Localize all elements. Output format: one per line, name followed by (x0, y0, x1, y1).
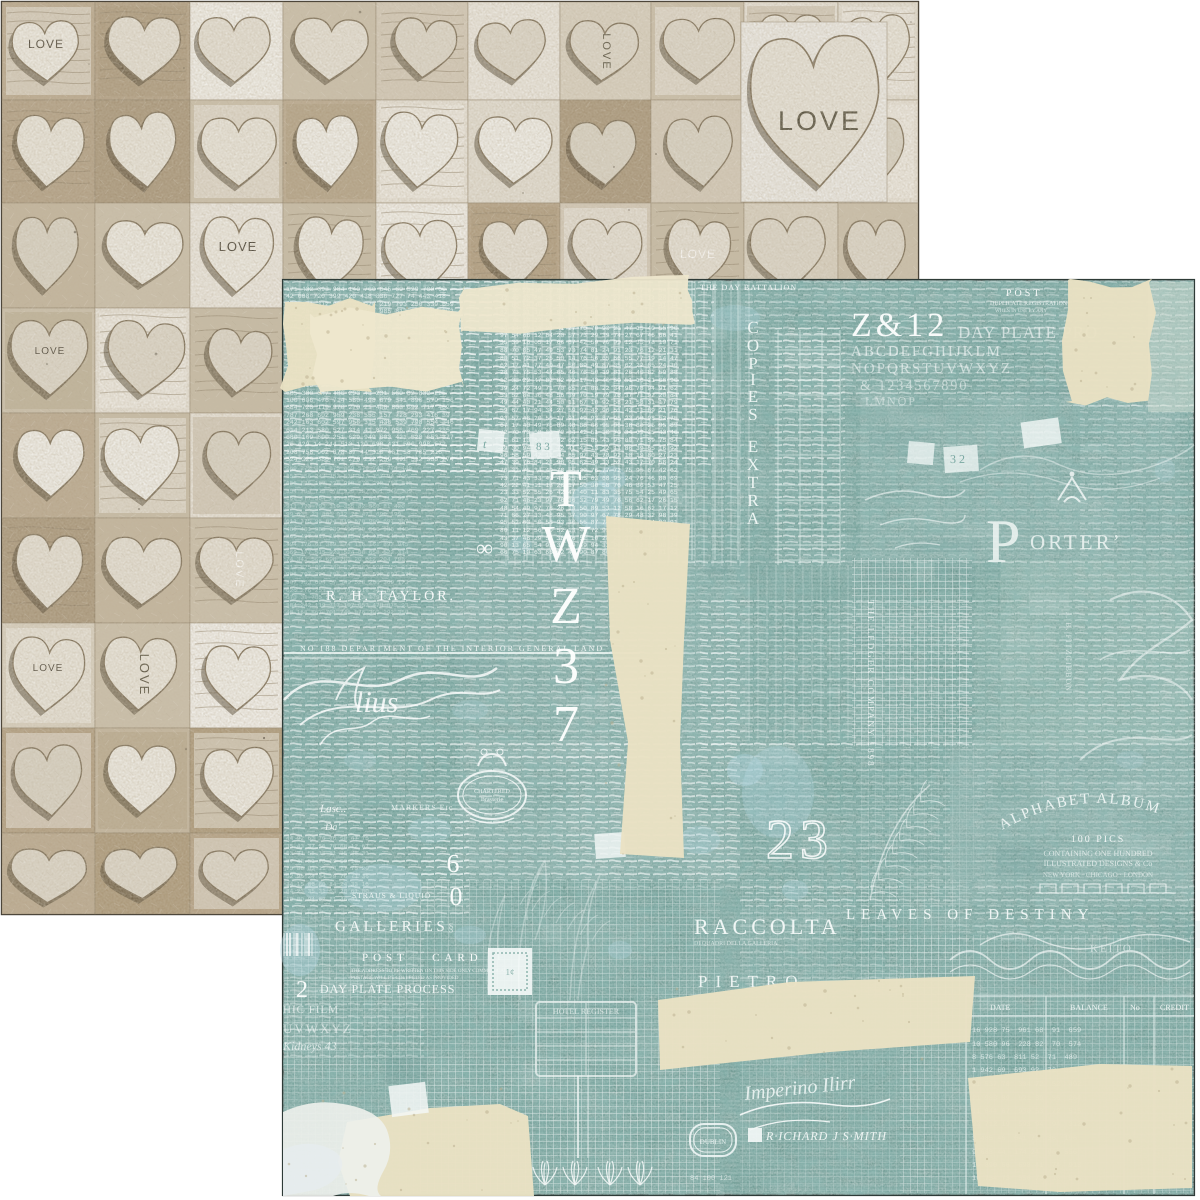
svg-text:E: E (748, 387, 758, 406)
svg-text:E: E (748, 437, 758, 456)
svg-text:73 71 43 33 47 46 25 35 63 68: 73 71 43 33 47 46 25 35 63 68 95 24 76 4… (500, 475, 678, 482)
svg-text:X: X (747, 455, 759, 474)
svg-text:88 70 85 47 49 53 73 74 81 24: 88 70 85 47 49 53 73 74 81 24 91 23 76 1… (500, 347, 678, 354)
svg-text:208 758 902 878 87 44 310 461: 208 758 902 878 87 44 310 461 38 705 216 (286, 449, 442, 456)
svg-text:97 54 66 12 84 20 57 73 29 39: 97 54 66 12 84 20 57 73 29 39 74 27 67 4… (500, 332, 678, 339)
svg-text:POST CARD: POST CARD (362, 952, 483, 964)
svg-text:489 451 985 239 495 29 596 985: 489 451 985 239 495 29 596 985 440 (286, 526, 409, 533)
svg-text:DATE: DATE (990, 1003, 1011, 1012)
svg-text:CREDIT: CREDIT (1160, 1003, 1189, 1012)
svg-text:611 375 96 834 810 670 990 697: 611 375 96 834 810 670 990 697 307 (286, 518, 409, 525)
svg-text:lius: lius (340, 686, 398, 719)
svg-text:& 1234567890: & 1234567890 (860, 379, 968, 394)
svg-text:47 39 76 84 21 98 95 62 49 13: 47 39 76 84 21 98 95 62 49 13 52 43 17 7… (500, 459, 678, 466)
svg-text:S: S (748, 405, 757, 424)
svg-text:DI QUADRI DELLA GALLERIA: DI QUADRI DELLA GALLERIA (694, 941, 778, 947)
svg-text:29 30 94 69 33 72 41 42 13 22: 29 30 94 69 33 72 41 42 13 22 11 86 39 5… (500, 445, 678, 452)
svg-text:J. B. FITZGIBBON: J. B. FITZGIBBON (1064, 612, 1073, 692)
svg-text:Z&12: Z&12 (851, 307, 948, 344)
svg-text:49 44 40 21 44 50 11 67 10 92: 49 44 40 21 44 50 11 67 10 92 58 21 58 3… (500, 399, 678, 406)
svg-text:171 432 693 984 140 760 645 69: 171 432 693 984 140 760 645 69 529 780 6… (286, 286, 446, 293)
svg-text:7: 7 (553, 696, 579, 753)
svg-text:74 341 562 698 783 20 612 204: 74 341 562 698 783 20 612 204 796 (286, 556, 405, 563)
svg-text:R·ICHARD J S·MITH: R·ICHARD J S·MITH (765, 1129, 887, 1143)
svg-text:Brasserie: Brasserie (481, 797, 504, 803)
svg-text:100 606 476 714 580 498 679 54: 100 606 476 714 580 498 679 541 890 579 … (286, 397, 454, 404)
svg-text:35 39 16 65 17 66 87 42 59 70: 35 39 16 65 17 66 87 42 59 70 93 12 35 7… (500, 339, 678, 346)
svg-text:6: 6 (447, 849, 460, 878)
svg-text:Kidneys 43: Kidneys 43 (282, 1039, 337, 1053)
svg-text:75 88 83 11 74 77 75 20: 75 88 83 11 74 77 75 20 (286, 865, 369, 872)
svg-text:8 576 63 811 52 71 489: 8 576 63 811 52 71 489 (972, 1054, 1077, 1062)
svg-text:265 497 917 108 825 754 419 64: 265 497 917 108 825 754 419 648 61 (286, 533, 409, 540)
svg-text:T: T (748, 473, 759, 492)
svg-text:42 22 41 11 18 26 17 50 30 58: 42 22 41 11 18 26 17 50 30 58 76 46 86 5… (500, 482, 678, 489)
svg-text:99 635 23 805 932 72 473 690 1: 99 635 23 805 932 72 473 690 199 (286, 511, 402, 518)
svg-text:87 43 51 78 39 59 18 35: 87 43 51 78 39 59 18 35 (286, 858, 369, 865)
svg-text:12 38 22 47 82 82 92 17 43 46: 12 38 22 47 82 82 92 17 43 46 69 51 16 3… (500, 377, 678, 384)
svg-text:W: W (541, 516, 590, 573)
svg-text:2: 2 (296, 977, 308, 1003)
svg-text:48 168 867 701 746 876 305 292: 48 168 867 701 746 876 305 292 358 (286, 609, 409, 616)
svg-text:DUPLICATE REGISTRATION: DUPLICATE REGISTRATION (990, 301, 1068, 307)
svg-text:911 773 793 319 355 82 560 81: 911 773 793 319 355 82 560 81 420 (286, 503, 405, 510)
svg-text:42 608 720 399 420 438 836 727: 42 608 720 399 420 438 836 727 74 443 41… (286, 293, 446, 300)
svg-text:A: A (747, 509, 760, 528)
svg-text:76 32 75 34 49 78 55 39 76 77: 76 32 75 34 49 78 55 39 76 77 72 75 95 6… (500, 467, 678, 474)
svg-text:DUBLIN: DUBLIN (700, 1138, 726, 1146)
svg-text:LEAVES OF DESTINY: LEAVES OF DESTINY (846, 907, 1094, 923)
svg-text:POSTAGE WILL BE COLLECTED AS P: POSTAGE WILL BE COLLECTED AS PROVIDED (351, 975, 459, 981)
svg-text:614 213 580 527 314 41 872 956: 614 213 580 527 314 41 872 956 769 227 2… (286, 427, 450, 434)
svg-text:NOPQRSTUVWXYZ: NOPQRSTUVWXYZ (851, 361, 1012, 377)
svg-text:313 875 864 349 524 643 598 72: 313 875 864 349 524 643 598 729 911 (286, 564, 412, 571)
svg-text:P: P (986, 508, 1020, 576)
svg-text:——STRAUS & LIQUID——: ——STRAUS & LIQUID—— (334, 891, 448, 900)
svg-text:BALANCE: BALANCE (1070, 1003, 1108, 1012)
svg-text:656 885 162 328 958 570 292 78: 656 885 162 328 958 570 292 786 843 (286, 480, 412, 487)
svg-text:NEW YORK · CHICAGO · LONDON: NEW YORK · CHICAGO · LONDON (1043, 871, 1153, 879)
svg-text:39 24 72 49 71 70 65 71 88 22: 39 24 72 49 71 70 65 71 88 22 34 96 78 9… (500, 385, 678, 392)
svg-text:POST: POST (1006, 288, 1042, 299)
svg-text:787 268 602 959 238 555 157 72: 787 268 602 959 238 555 157 728 293 416 … (286, 412, 450, 419)
svg-text:53 52 84 36 48 56 39 70 19 79: 53 52 84 36 48 56 39 70 19 79 76 37 71 9… (500, 392, 678, 399)
svg-text:THE LEDGER COMPANY 1898: THE LEDGER COMPANY 1898 (866, 600, 876, 768)
svg-text:R. H. TAYLOR.: R. H. TAYLOR. (326, 589, 456, 604)
svg-text:23: 23 (766, 809, 834, 871)
svg-text:LMNOP: LMNOP (865, 394, 917, 408)
svg-text:81 61 13 64 53 92 62 15 85 43: 81 61 13 64 53 92 62 15 85 43 95 80 71 5… (500, 437, 678, 444)
svg-text:44 92 63 70 76 50 47 75: 44 92 63 70 76 50 47 75 (286, 835, 369, 842)
svg-text:No: No (1130, 1003, 1140, 1012)
svg-text:28 73 75 53 44 65 46 76 50 19: 28 73 75 53 44 65 46 76 50 19 83 26 40 8… (500, 369, 678, 376)
svg-text:26 429 14 244 513 120 688 431: 26 429 14 244 513 120 688 431 596 998 57… (286, 441, 446, 448)
svg-text:260 272 353 875 859 579 743 77: 260 272 353 875 859 579 743 774 449 (286, 465, 412, 472)
svg-text:0: 0 (450, 882, 463, 911)
svg-text:669 177 515 923 524 58 658 522: 669 177 515 923 524 58 658 522 314 (286, 549, 409, 556)
svg-text:100 PICS: 100 PICS (1071, 834, 1126, 845)
svg-text:354 784 713 678 930 137 681 54: 354 784 713 678 930 137 681 546 389 (286, 488, 412, 495)
svg-text:93 57 46 20 56 17 91 49 93 87: 93 57 46 20 56 17 91 49 93 87 95 23 68 9… (500, 415, 678, 422)
svg-text:§: § (448, 920, 454, 934)
svg-text:O: O (747, 336, 759, 355)
svg-text:3 2: 3 2 (950, 452, 965, 466)
svg-text:96 58 59 42 12 44 65 97 43 78: 96 58 59 42 12 44 65 97 43 78 92 10 19 8… (500, 452, 678, 459)
svg-text:524 329 580 701 278 212 259 49: 524 329 580 701 278 212 259 492 512 330 … (286, 456, 454, 463)
svg-text:THE DAY BATTALION: THE DAY BATTALION (700, 283, 797, 292)
svg-text:Lasc..: Lasc.. (319, 803, 346, 815)
svg-text:CONTAINING ONE HUNDRED: CONTAINING ONE HUNDRED (1043, 849, 1152, 858)
svg-text:R: R (747, 491, 759, 510)
svg-text:84 100 121: 84 100 121 (690, 1175, 732, 1183)
svg-text:ORTER’: ORTER’ (1030, 530, 1123, 554)
svg-text:∞: ∞ (476, 536, 493, 562)
svg-text:HIC FILM: HIC FILM (283, 1004, 339, 1016)
svg-text:C: C (747, 318, 758, 337)
svg-text:852 356 243 752 538 512 757 94: 852 356 243 752 538 512 757 94 706 (286, 473, 409, 480)
svg-text:168 777 504 390 926 31 838 712: 168 777 504 390 926 31 838 712 973 (286, 495, 409, 502)
svg-text:8 3: 8 3 (536, 441, 550, 453)
svg-text:Z: Z (550, 578, 582, 635)
svg-text:UVWXYZ: UVWXYZ (283, 1021, 353, 1036)
svg-text:16 928 75 961 68 91 659: 16 928 75 961 68 91 659 (972, 1027, 1081, 1035)
svg-text:53 31 55 11 81 35 38 31: 53 31 55 11 81 35 38 31 (286, 850, 369, 857)
svg-text:ILLUSTRATED DESIGNS & Co: ILLUSTRATED DESIGNS & Co (1044, 859, 1153, 868)
svg-text:52 96 24 34 79 76 71 36: 52 96 24 34 79 76 71 36 (286, 873, 369, 880)
svg-text:680 169 600 251 629 949 603 42: 680 169 600 251 629 949 603 421 528 653 … (286, 434, 454, 441)
svg-text:RACCOLTA: RACCOLTA (694, 914, 841, 939)
svg-text:62 17 41 77 40 47 50 89 49 87: 62 17 41 77 40 47 50 89 49 87 35 62 22 8… (500, 362, 678, 369)
svg-text:ABCDEFGHIJKLM: ABCDEFGHIJKLM (851, 344, 1002, 360)
svg-text:35 43 37 56 78 68 12 67: 35 43 37 56 78 68 12 67 (286, 843, 369, 850)
svg-text:72 70 73 68 66 70 34 42 51 38: 72 70 73 68 66 70 34 42 51 38 73 34 69 3… (500, 429, 678, 436)
svg-text:80 51 72 37 25 50 14 76 56 65: 80 51 72 37 25 50 14 76 56 65 66 55 77 1… (500, 355, 678, 362)
svg-text:48 54 49 97 78 26 13 50 89 53: 48 54 49 97 78 26 13 50 89 53 12 58 16 6… (500, 505, 678, 512)
svg-text:494 176 61 389 174 116 161 897: 494 176 61 389 174 116 161 897 945 (286, 541, 409, 548)
svg-text:34 15 86 80 84 24 33 16: 34 15 86 80 84 24 33 16 (286, 881, 369, 888)
svg-text:62 71 46 23 97 76 36 32 79 49: 62 71 46 23 97 76 36 32 79 49 76 56 62 1… (500, 497, 678, 504)
svg-text:1¢: 1¢ (506, 967, 515, 977)
svg-text:3: 3 (553, 638, 579, 695)
svg-text:MARKERS Etc: MARKERS Etc (391, 803, 453, 812)
svg-text:Da’: Da’ (324, 822, 341, 833)
svg-text:HOTEL REGISTER: HOTEL REGISTER (553, 1007, 620, 1016)
svg-text:T: T (550, 461, 582, 518)
svg-text:DAY PLATE PROCESS: DAY PLATE PROCESS (320, 982, 455, 996)
svg-text:CHARTERED: CHARTERED (474, 789, 510, 795)
svg-text:GALLERIES: GALLERIES (335, 919, 448, 935)
svg-text:67 17 40 49 75 89 48 88 66 95: 67 17 40 49 75 89 48 88 66 95 96 38 86 2… (500, 422, 678, 429)
svg-text:KEITO: KEITO (1090, 943, 1133, 955)
svg-text:WHEN IN USE BY ANY: WHEN IN USE BY ANY (995, 308, 1047, 314)
svg-text:998 707 326 806 565 382 502 69: 998 707 326 806 565 382 502 692 338 (286, 571, 412, 578)
svg-text:10 580 96 228 82 70 574: 10 580 96 228 82 70 574 (972, 1041, 1081, 1049)
svg-text:807 753 604 57 549 528 288 369: 807 753 604 57 549 528 288 369 173 (286, 579, 409, 586)
svg-text:59 67 17 94 34 27 59 97 42 96: 59 67 17 94 34 27 59 97 42 96 51 43 11 8… (500, 407, 678, 414)
svg-text:23 33 52 55 26 42 47 40 11 83: 23 33 52 55 26 42 47 40 11 83 35 75 54 2… (500, 489, 678, 496)
svg-text:242 163 602 597 956 315 436 53: 242 163 602 597 956 315 436 539 798 554 … (286, 419, 454, 426)
svg-text:684 728 119 970 270 21 408 803: 684 728 119 970 270 21 408 803 692 717 4… (286, 404, 450, 411)
